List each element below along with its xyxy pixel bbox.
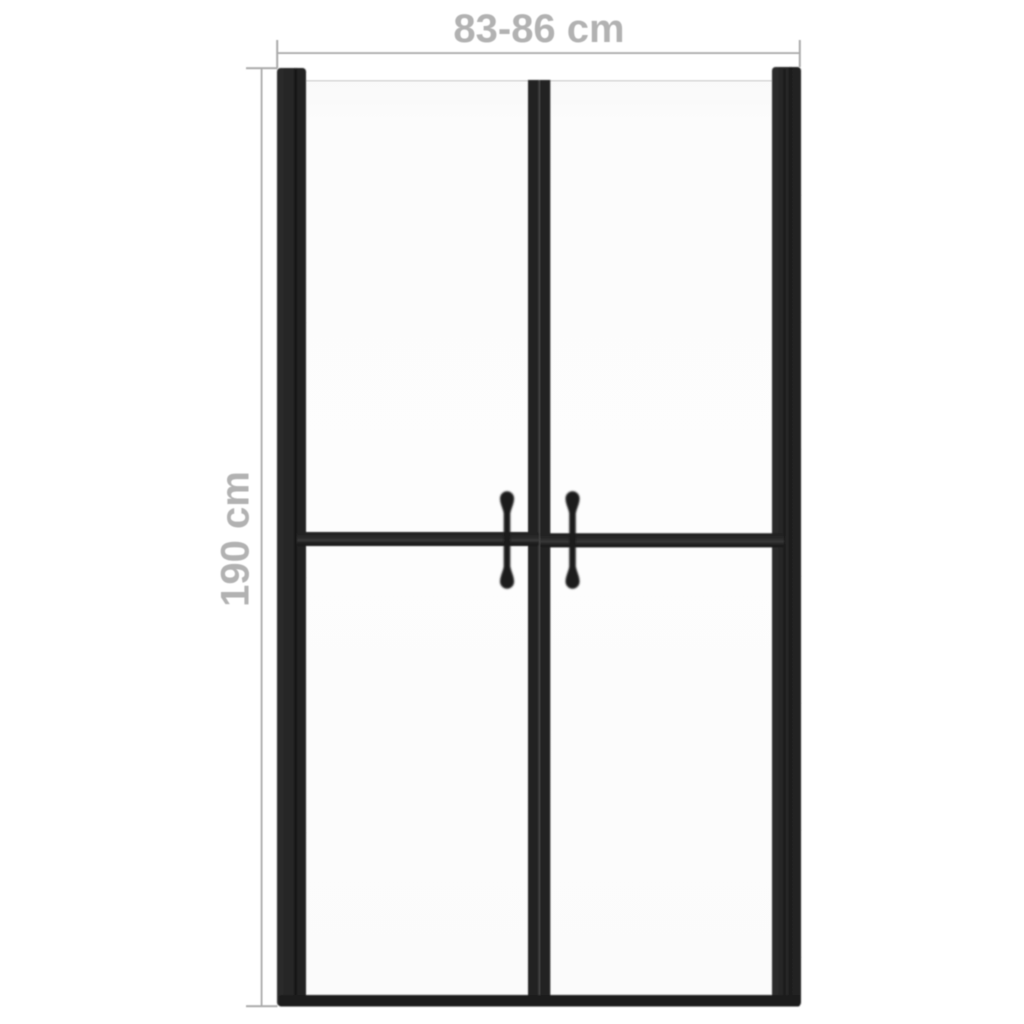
svg-text:190 cm: 190 cm xyxy=(214,471,258,607)
svg-text:83-86 cm: 83-86 cm xyxy=(453,7,624,51)
